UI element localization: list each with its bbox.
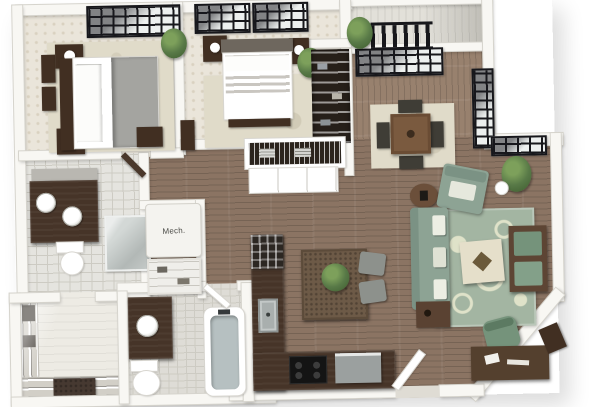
- hall-closet-shelves: [245, 137, 346, 169]
- dishwasher: [335, 352, 382, 383]
- living-ottoman: [459, 239, 505, 285]
- mech-closet-label: Mech.: [162, 225, 185, 235]
- kitchen-sink: [258, 298, 279, 332]
- bedroom2-wardrobe: [311, 49, 351, 144]
- exterior-wall-bottom-b: [440, 385, 484, 397]
- sofa-pillow: [433, 247, 446, 267]
- exterior-wall-living-right: [551, 133, 564, 301]
- folded-linens: [295, 148, 311, 157]
- shower: [104, 215, 151, 272]
- bedroom2-window-right: [252, 2, 309, 33]
- dining-chair-top: [398, 100, 422, 113]
- sofa-back: [410, 208, 420, 310]
- sofa-pillow: [432, 215, 445, 235]
- burner-icon: [295, 362, 302, 369]
- ottoman-tray-decor: [472, 252, 492, 272]
- folded-clothes: [320, 119, 330, 125]
- table-centerpiece: [407, 130, 415, 138]
- bedroom2-foot-bench: [228, 118, 290, 127]
- exterior-wall-left-lower: [10, 293, 22, 405]
- desk-papers: [507, 359, 529, 365]
- bathroom1-wall-bottom-a: [10, 293, 60, 303]
- burner-icon: [313, 372, 320, 379]
- bar-stool-bottom: [358, 279, 387, 304]
- bench-cushion: [514, 231, 542, 256]
- folded-clothes: [332, 93, 342, 99]
- bedroom2-dresser: [180, 120, 195, 150]
- closet2-wall-top: [305, 39, 351, 48]
- toilet-tank: [131, 361, 157, 371]
- dining-chair-left: [376, 122, 389, 148]
- glass-glare: [106, 217, 149, 270]
- tub-faucet-icon: [218, 309, 230, 314]
- living-side-table-bottom: [416, 301, 450, 328]
- faucet-icon: [266, 313, 270, 317]
- dining-chair-right: [430, 121, 443, 147]
- linen-closet-shelves: [147, 258, 202, 295]
- candelabra-decor: [420, 191, 428, 201]
- living-sofa: [410, 207, 450, 310]
- shelf-items: [157, 267, 167, 273]
- desk: [471, 345, 550, 380]
- cooktop: [289, 356, 328, 385]
- dining-table: [390, 113, 431, 154]
- bathtub-basin: [210, 315, 239, 390]
- dining-chair-bottom: [399, 156, 423, 169]
- sofa-pillow: [433, 279, 446, 299]
- armchair-pillow: [448, 181, 477, 202]
- living-window: [491, 135, 547, 156]
- desk-papers: [484, 353, 500, 365]
- bed-striped-blanket: [226, 74, 290, 93]
- floor-plan-render: Mech.: [0, 0, 600, 407]
- wire-shelf-interior: [249, 141, 341, 165]
- entry-threshold: [396, 385, 440, 398]
- wall-art-frame-1: [41, 55, 56, 83]
- bedroom2-bed-headboard: [221, 38, 293, 53]
- bathtub: [204, 307, 246, 396]
- burner-icon: [313, 362, 320, 369]
- kitchen-appliance-tower: [251, 234, 284, 269]
- bedroom2-window-left: [194, 3, 251, 34]
- bar-stool-top: [358, 251, 386, 276]
- bedroom1-chest: [137, 127, 163, 147]
- mirror-glare: [18, 294, 120, 400]
- bed-pillows: [75, 64, 102, 142]
- bed-pillow-band: [225, 54, 289, 71]
- wall-art-frame-2: [42, 87, 56, 111]
- living-bench: [508, 225, 547, 292]
- bench-cushion: [514, 261, 542, 286]
- table-decor: [424, 310, 431, 317]
- mech-closet: Mech.: [146, 204, 201, 257]
- lamp-icon: [210, 43, 220, 53]
- folded-clothes: [317, 63, 327, 69]
- toilet-tank: [57, 242, 83, 252]
- apartment-unit: Mech.: [0, 0, 600, 407]
- bedroom2-bed: [223, 52, 292, 119]
- hall-cabinet: [249, 167, 337, 193]
- folded-linens: [259, 148, 275, 157]
- shelf-items: [177, 278, 189, 284]
- balcony-railing: [371, 21, 434, 50]
- dining-window-top: [355, 47, 444, 77]
- burner-icon: [295, 372, 302, 379]
